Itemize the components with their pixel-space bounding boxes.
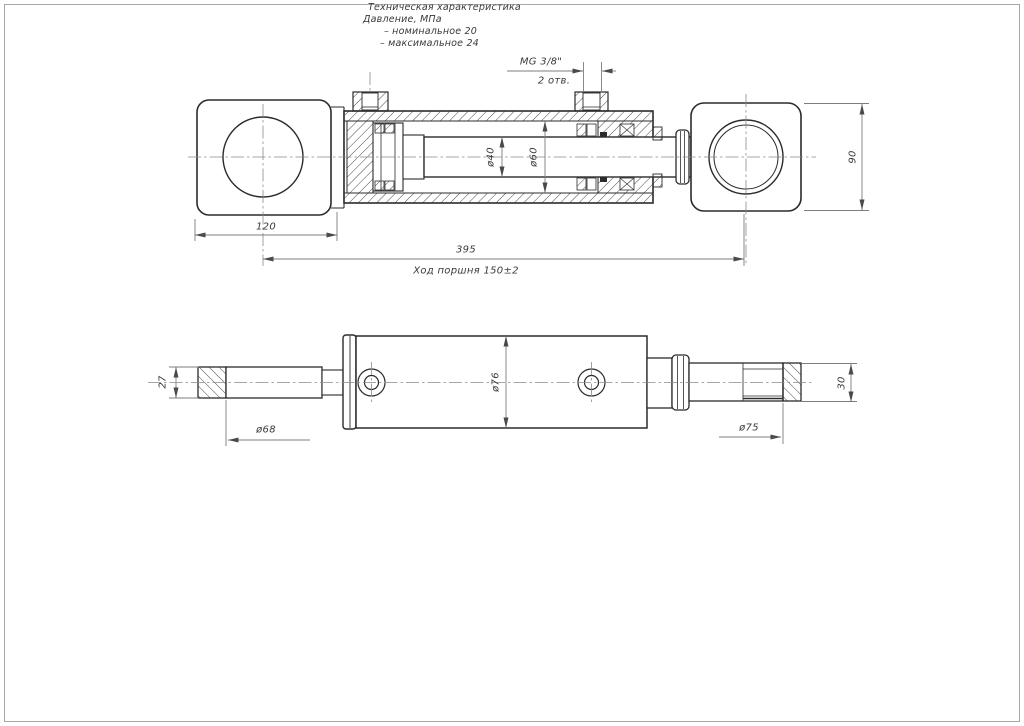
oil-port-left: [353, 92, 388, 111]
dim-stroke: Ход поршня 150±2: [413, 266, 519, 277]
dim-27: 27: [158, 375, 169, 388]
section-view: [197, 92, 801, 215]
port-thread-label: MG 3/8": [520, 57, 562, 68]
dim-d76: ø76: [491, 372, 502, 392]
dim-395: 395: [456, 245, 476, 256]
rear-flange: [343, 335, 356, 429]
rod-end: [689, 363, 801, 401]
dim-120: 120: [256, 222, 276, 233]
oil-port-right: [575, 92, 608, 111]
left-eye: [197, 100, 344, 215]
spec-title: Техническая характеристика: [368, 2, 521, 13]
cylinder-body: [356, 336, 647, 428]
dim-d68: ø68: [256, 425, 276, 436]
spec-maximal: – максимальное 24: [380, 38, 479, 49]
dim-d60: ø60: [529, 147, 540, 167]
spec-pressure-label: Давление, МПа: [363, 14, 442, 25]
dim-30: 30: [837, 376, 848, 389]
dim-90: 90: [848, 150, 859, 163]
dim-d40: ø40: [486, 147, 497, 167]
spec-nominal: – номинальное 20: [384, 26, 477, 37]
port-count-label: 2 отв.: [538, 76, 570, 87]
cylinder-drawing: [0, 0, 1024, 726]
drawing-sheet: Техническая характеристика Давление, МПа…: [0, 0, 1024, 726]
dim-d75: ø75: [739, 423, 759, 434]
